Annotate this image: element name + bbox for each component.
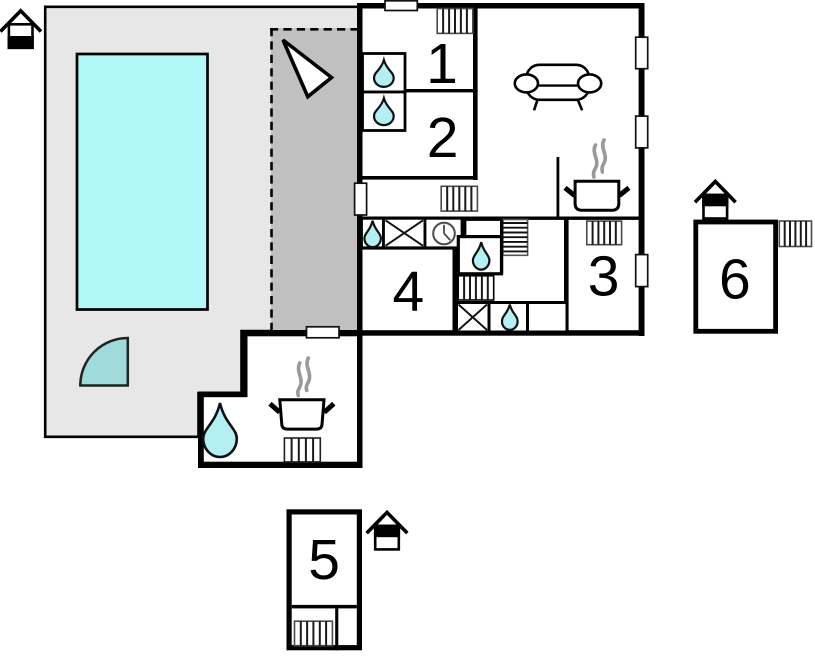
svg-text:2: 2: [427, 106, 459, 170]
svg-text:4: 4: [393, 260, 425, 324]
svg-text:6: 6: [719, 248, 751, 312]
svg-text:1: 1: [426, 32, 458, 96]
svg-text:3: 3: [588, 245, 620, 309]
svg-text:5: 5: [308, 528, 340, 592]
